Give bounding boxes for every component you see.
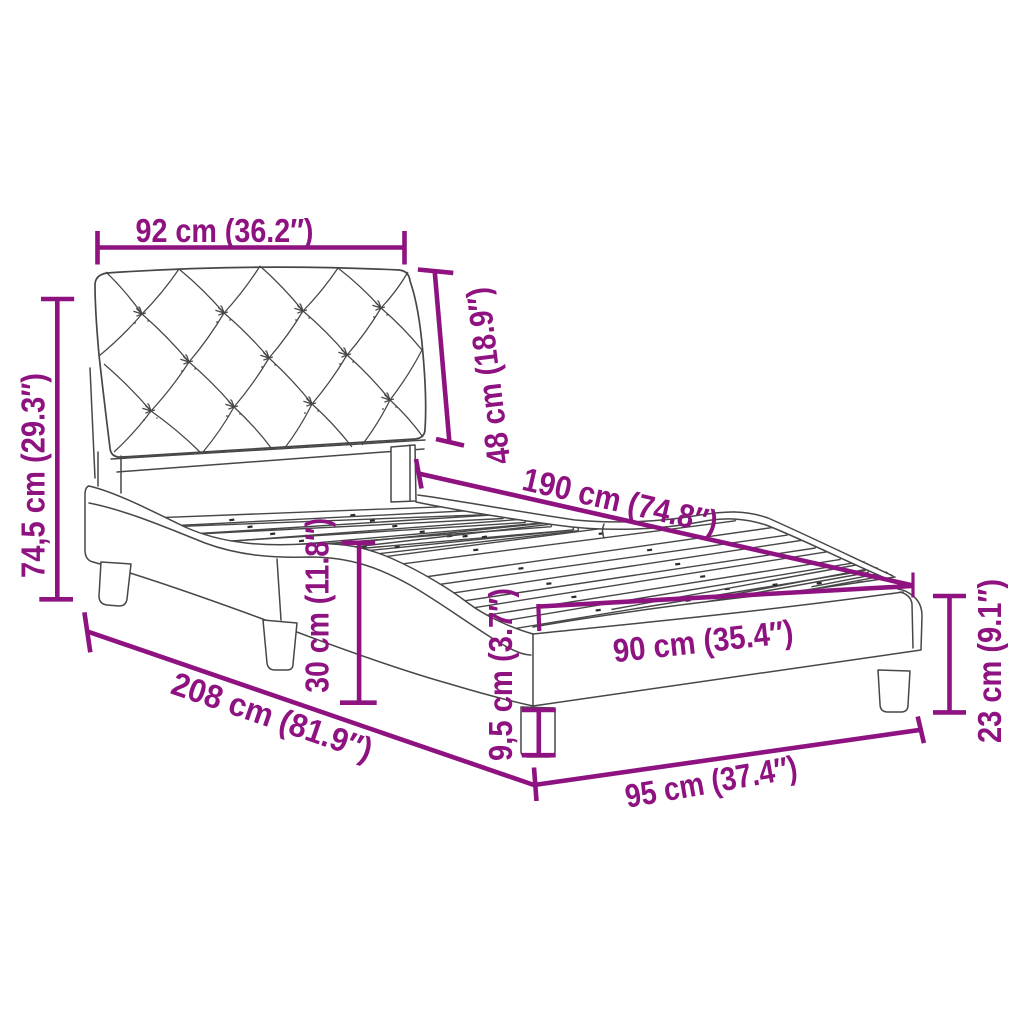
svg-text:74,5 cm (29.3″): 74,5 cm (29.3″) [15, 373, 52, 578]
svg-text:23 cm (9.1″): 23 cm (9.1″) [971, 579, 1008, 743]
svg-text:30 cm (11.8″): 30 cm (11.8″) [299, 518, 336, 693]
svg-text:9,5 cm (3.7″): 9,5 cm (3.7″) [482, 588, 519, 761]
svg-text:92 cm (36.2″): 92 cm (36.2″) [136, 212, 314, 249]
